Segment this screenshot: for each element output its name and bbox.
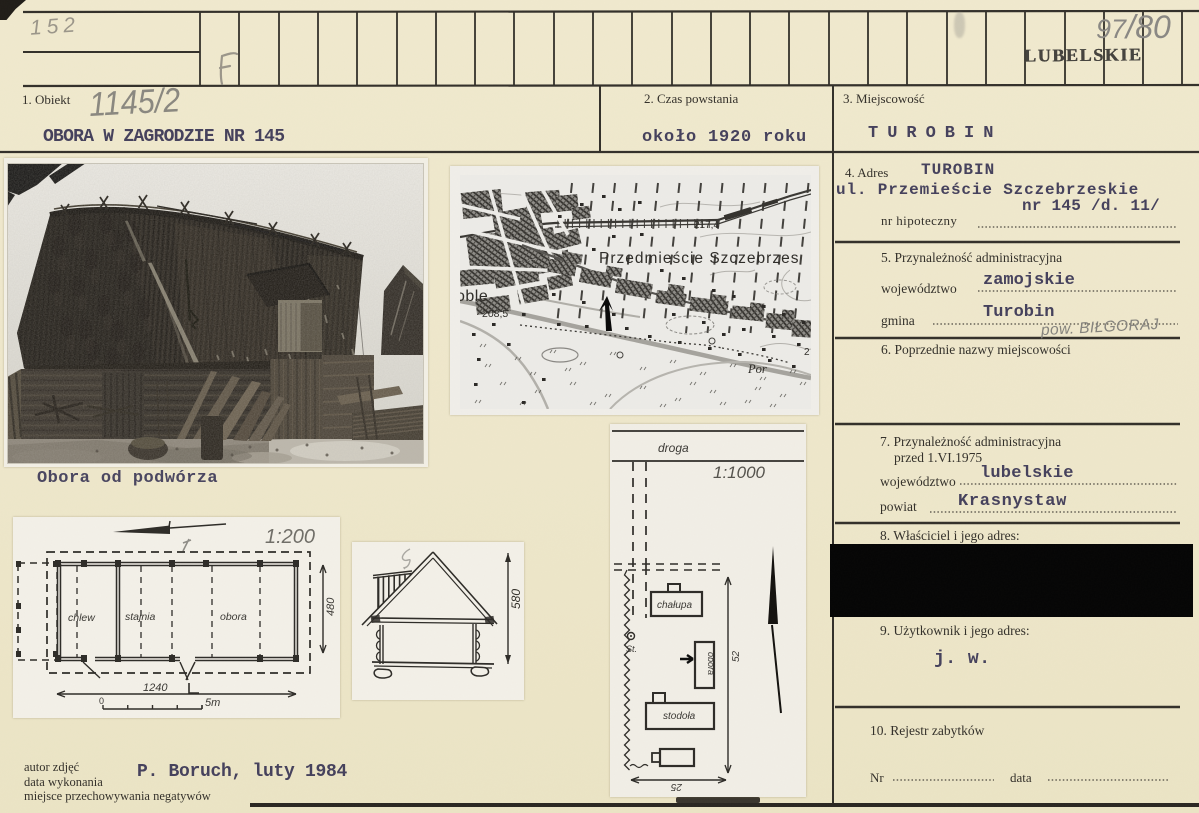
svg-text:25: 25 bbox=[670, 781, 683, 792]
svg-text:1240: 1240 bbox=[143, 682, 168, 694]
svg-text:chlew: chlew bbox=[68, 612, 96, 624]
svg-text:217,4: 217,4 bbox=[694, 220, 719, 231]
svg-text:Por: Por bbox=[747, 362, 767, 376]
svg-text:stajnia: stajnia bbox=[125, 611, 156, 623]
svg-text:580: 580 bbox=[509, 589, 523, 609]
svg-text:52: 52 bbox=[731, 650, 742, 662]
svg-text:5m: 5m bbox=[205, 697, 220, 709]
svg-text:stodoła: stodoła bbox=[663, 711, 696, 722]
svg-text:2: 2 bbox=[804, 347, 810, 358]
svg-text:208,5: 208,5 bbox=[482, 308, 508, 320]
svg-text:obora: obora bbox=[706, 652, 716, 675]
svg-text:St.: St. bbox=[626, 644, 637, 654]
svg-text:0: 0 bbox=[99, 696, 104, 706]
svg-text:chałupa: chałupa bbox=[657, 600, 692, 611]
svg-text:480: 480 bbox=[325, 597, 337, 616]
svg-text:oble: oble bbox=[460, 288, 488, 305]
svg-text:1:1000: 1:1000 bbox=[713, 463, 766, 482]
svg-text:obora: obora bbox=[220, 611, 247, 623]
svg-text:1:200: 1:200 bbox=[265, 526, 315, 548]
svg-text:droga: droga bbox=[658, 441, 689, 455]
svg-text:Przedmieście Szczebrzes: Przedmieście Szczebrzes bbox=[599, 250, 799, 267]
